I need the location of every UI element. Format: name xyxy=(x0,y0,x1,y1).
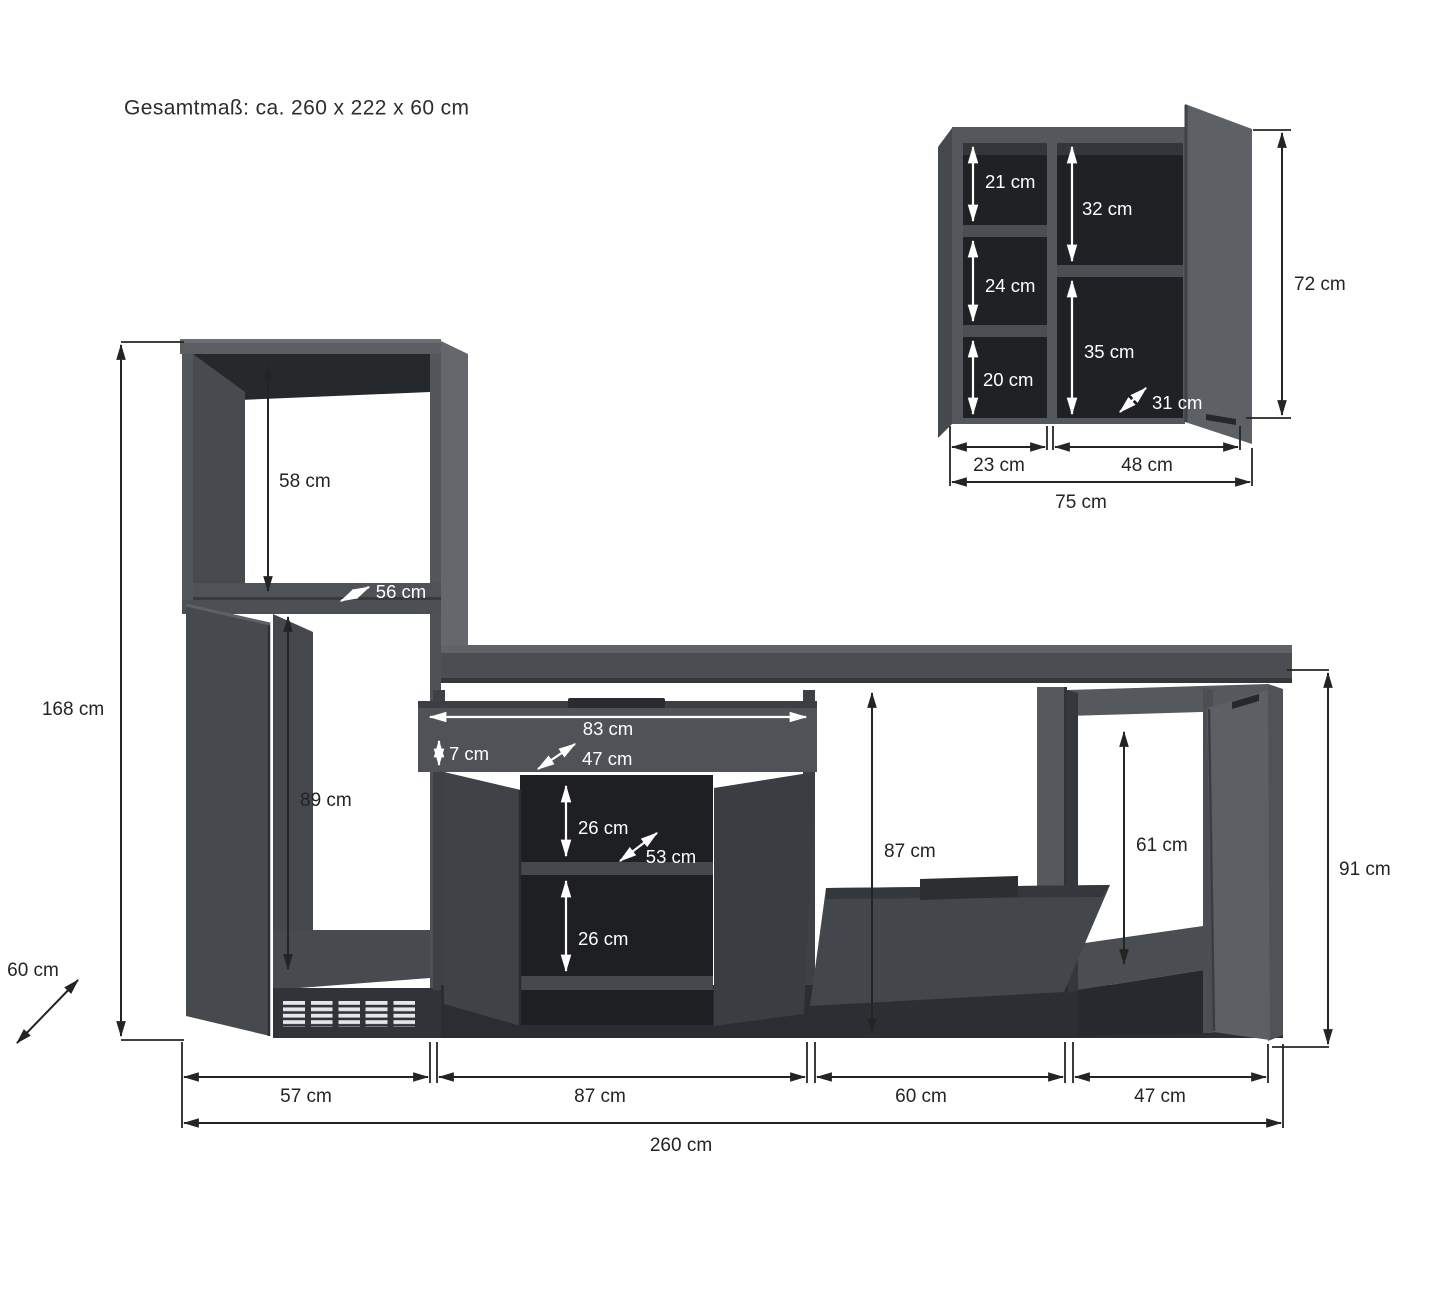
wall-shelf-32-label: 32 cm xyxy=(1082,198,1132,219)
width-tall-label: 57 cm xyxy=(280,1086,332,1107)
wall-depth-31-label: 31 cm xyxy=(1152,392,1202,413)
right-compartment-height-label: 61 cm xyxy=(1136,835,1188,856)
wall-cabinet-shelf xyxy=(1057,265,1183,277)
appliance-gap: 87 cm xyxy=(810,687,1110,1038)
worktop-height-label: 91 cm xyxy=(1339,859,1391,880)
shelf-gap-upper-label: 26 cm xyxy=(578,817,628,838)
tall-cabinet: 58 cm 56 cm 89 cm xyxy=(180,339,468,1038)
bottom-dimensions: 57 cm 87 cm 60 cm 47 cm 260 cm xyxy=(182,1042,1283,1156)
wall-height-72-label: 72 cm xyxy=(1294,274,1346,295)
flap-handle xyxy=(920,876,1018,900)
wall-cabinet: 21 cm 24 cm 20 cm 32 cm 35 cm 31 cm 72 c… xyxy=(938,104,1346,513)
wall-width-48-label: 48 cm xyxy=(1121,455,1173,476)
tall-cabinet-right-side xyxy=(441,341,468,683)
width-gap-label: 60 cm xyxy=(895,1086,947,1107)
dim-arrow-60cm-depth xyxy=(17,980,78,1043)
middle-cabinet-floor xyxy=(520,976,713,990)
right-base-cabinet xyxy=(1067,684,1283,1041)
shelf-depth-label: 53 cm xyxy=(646,846,696,867)
width-total-label: 260 cm xyxy=(650,1135,712,1156)
middle-base-cabinet: 83 cm 7 cm 47 cm 26 cm 53 cm 26 cm xyxy=(418,690,817,1038)
right-cabinet-open-door xyxy=(1207,690,1270,1040)
right-cabinet-side-panel xyxy=(1268,684,1283,1041)
wall-shelf-20-label: 20 cm xyxy=(983,369,1033,390)
width-middle-label: 87 cm xyxy=(574,1086,626,1107)
wall-width-75-label: 75 cm xyxy=(1055,492,1107,513)
diagram-canvas: Gesamtmaß: ca. 260 x 222 x 60 cm 21 cm 2… xyxy=(0,0,1434,1302)
wall-shelf-21-label: 21 cm xyxy=(985,171,1035,192)
lower-niche-floor xyxy=(273,930,430,990)
vent-grille xyxy=(283,1001,419,1027)
fold-down-flap xyxy=(810,885,1110,1006)
gap-right-pillar xyxy=(1037,687,1067,892)
furniture-dimension-diagram: Gesamtmaß: ca. 260 x 222 x 60 cm 21 cm 2… xyxy=(0,0,1434,1302)
page-title: Gesamtmaß: ca. 260 x 222 x 60 cm xyxy=(124,97,469,120)
drawer-width-label: 83 cm xyxy=(583,718,633,739)
lower-niche-left-wall xyxy=(273,614,313,950)
wall-shelf-35-label: 35 cm xyxy=(1084,341,1134,362)
appliance-gap-height-label: 87 cm xyxy=(884,841,936,862)
tall-cabinet-open-door xyxy=(186,604,270,1036)
wall-shelf-24-label: 24 cm xyxy=(985,275,1035,296)
wall-cabinet-left-side xyxy=(938,128,952,438)
left-dimensions: 168 cm 60 cm xyxy=(7,342,184,1043)
wall-cabinet-right-column-interior xyxy=(1057,143,1183,418)
drawer-handle xyxy=(568,698,665,708)
lower-niche-height-label: 89 cm xyxy=(300,790,352,811)
drawer-depth-label: 47 cm xyxy=(582,748,632,769)
oven-niche-depth-label: 56 cm xyxy=(376,581,426,602)
drawer-height-label: 7 cm xyxy=(449,743,489,764)
wall-cabinet-shelf xyxy=(963,225,1047,237)
wall-cabinet-shelf xyxy=(963,325,1047,337)
middle-cabinet-left-door xyxy=(444,772,521,1026)
width-right-label: 47 cm xyxy=(1134,1086,1186,1107)
worktop xyxy=(441,645,1292,683)
oven-niche-left-wall xyxy=(193,354,245,598)
shelf-gap-lower-label: 26 cm xyxy=(578,928,628,949)
oven-niche-height-label: 58 cm xyxy=(279,471,331,492)
depth-label: 60 cm xyxy=(7,960,59,981)
wall-width-23-label: 23 cm xyxy=(973,455,1025,476)
middle-cabinet-right-door xyxy=(714,772,815,1026)
height-left-label: 168 cm xyxy=(42,699,104,720)
